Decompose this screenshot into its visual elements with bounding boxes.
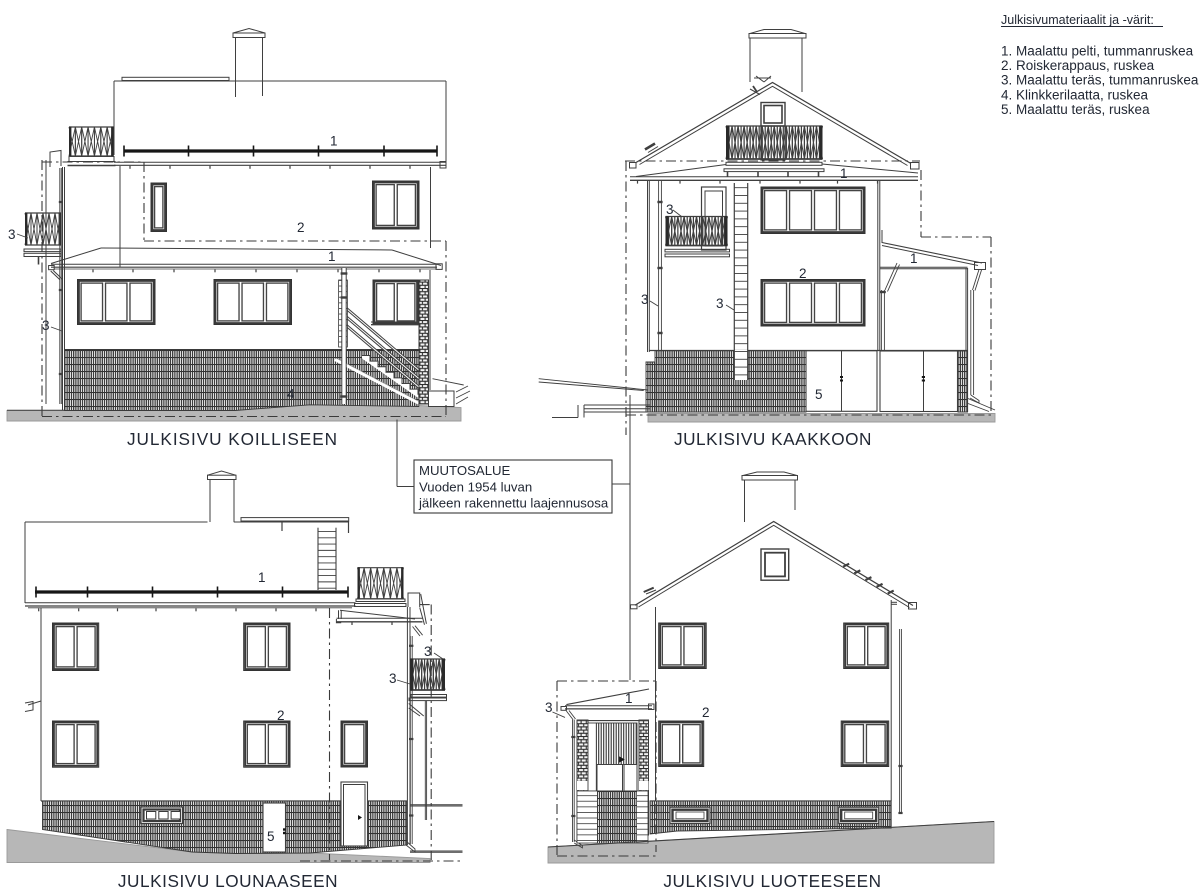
svg-text:1: 1 (330, 134, 338, 149)
svg-text:3: 3 (716, 296, 724, 311)
svg-text:1: 1 (840, 166, 848, 181)
svg-text:3: 3 (424, 644, 432, 659)
svg-text:1: 1 (258, 570, 266, 585)
svg-text:MUUTOSALUE: MUUTOSALUE (419, 463, 511, 478)
svg-text:3: 3 (42, 318, 50, 333)
svg-text:jälkeen rakennettu laajennusos: jälkeen rakennettu laajennusosa (418, 496, 609, 511)
svg-text:3: 3 (545, 700, 553, 715)
svg-text:1: 1 (625, 691, 633, 706)
svg-text:5: 5 (815, 387, 823, 402)
svg-text:4. Klinkkerilaatta, ruskea: 4. Klinkkerilaatta, ruskea (1001, 87, 1149, 102)
svg-text:JULKISIVU KOILLISEEN: JULKISIVU KOILLISEEN (127, 429, 338, 449)
svg-text:2: 2 (297, 220, 305, 235)
svg-text:1: 1 (910, 251, 918, 266)
svg-text:JULKISIVU LOUNAASEEN: JULKISIVU LOUNAASEEN (118, 871, 338, 888)
svg-text:Vuoden 1954 luvan: Vuoden 1954 luvan (419, 479, 532, 494)
svg-text:JULKISIVU LUOTEESEEN: JULKISIVU LUOTEESEEN (663, 871, 881, 888)
svg-text:2: 2 (702, 705, 710, 720)
svg-text:2: 2 (799, 266, 807, 281)
svg-text:Julkisivumateriaalit ja -värit: Julkisivumateriaalit ja -värit: (1001, 13, 1154, 27)
svg-text:3: 3 (8, 227, 16, 242)
svg-text:1. Maalattu pelti, tummanruske: 1. Maalattu pelti, tummanruskea (1001, 44, 1194, 59)
svg-text:5. Maalattu teräs, ruskea: 5. Maalattu teräs, ruskea (1001, 102, 1150, 117)
svg-text:JULKISIVU KAAKKOON: JULKISIVU KAAKKOON (674, 429, 872, 449)
svg-text:4: 4 (287, 387, 295, 402)
svg-text:1: 1 (328, 249, 336, 264)
svg-text:3: 3 (389, 671, 397, 686)
svg-text:3: 3 (641, 292, 649, 307)
svg-text:2: 2 (277, 708, 285, 723)
svg-text:3: 3 (666, 202, 674, 217)
svg-text:3. Maalattu teräs, tummanruske: 3. Maalattu teräs, tummanruskea (1001, 73, 1199, 88)
svg-text:5: 5 (267, 829, 275, 844)
svg-text:2. Roiskerappaus, ruskea: 2. Roiskerappaus, ruskea (1001, 58, 1155, 73)
